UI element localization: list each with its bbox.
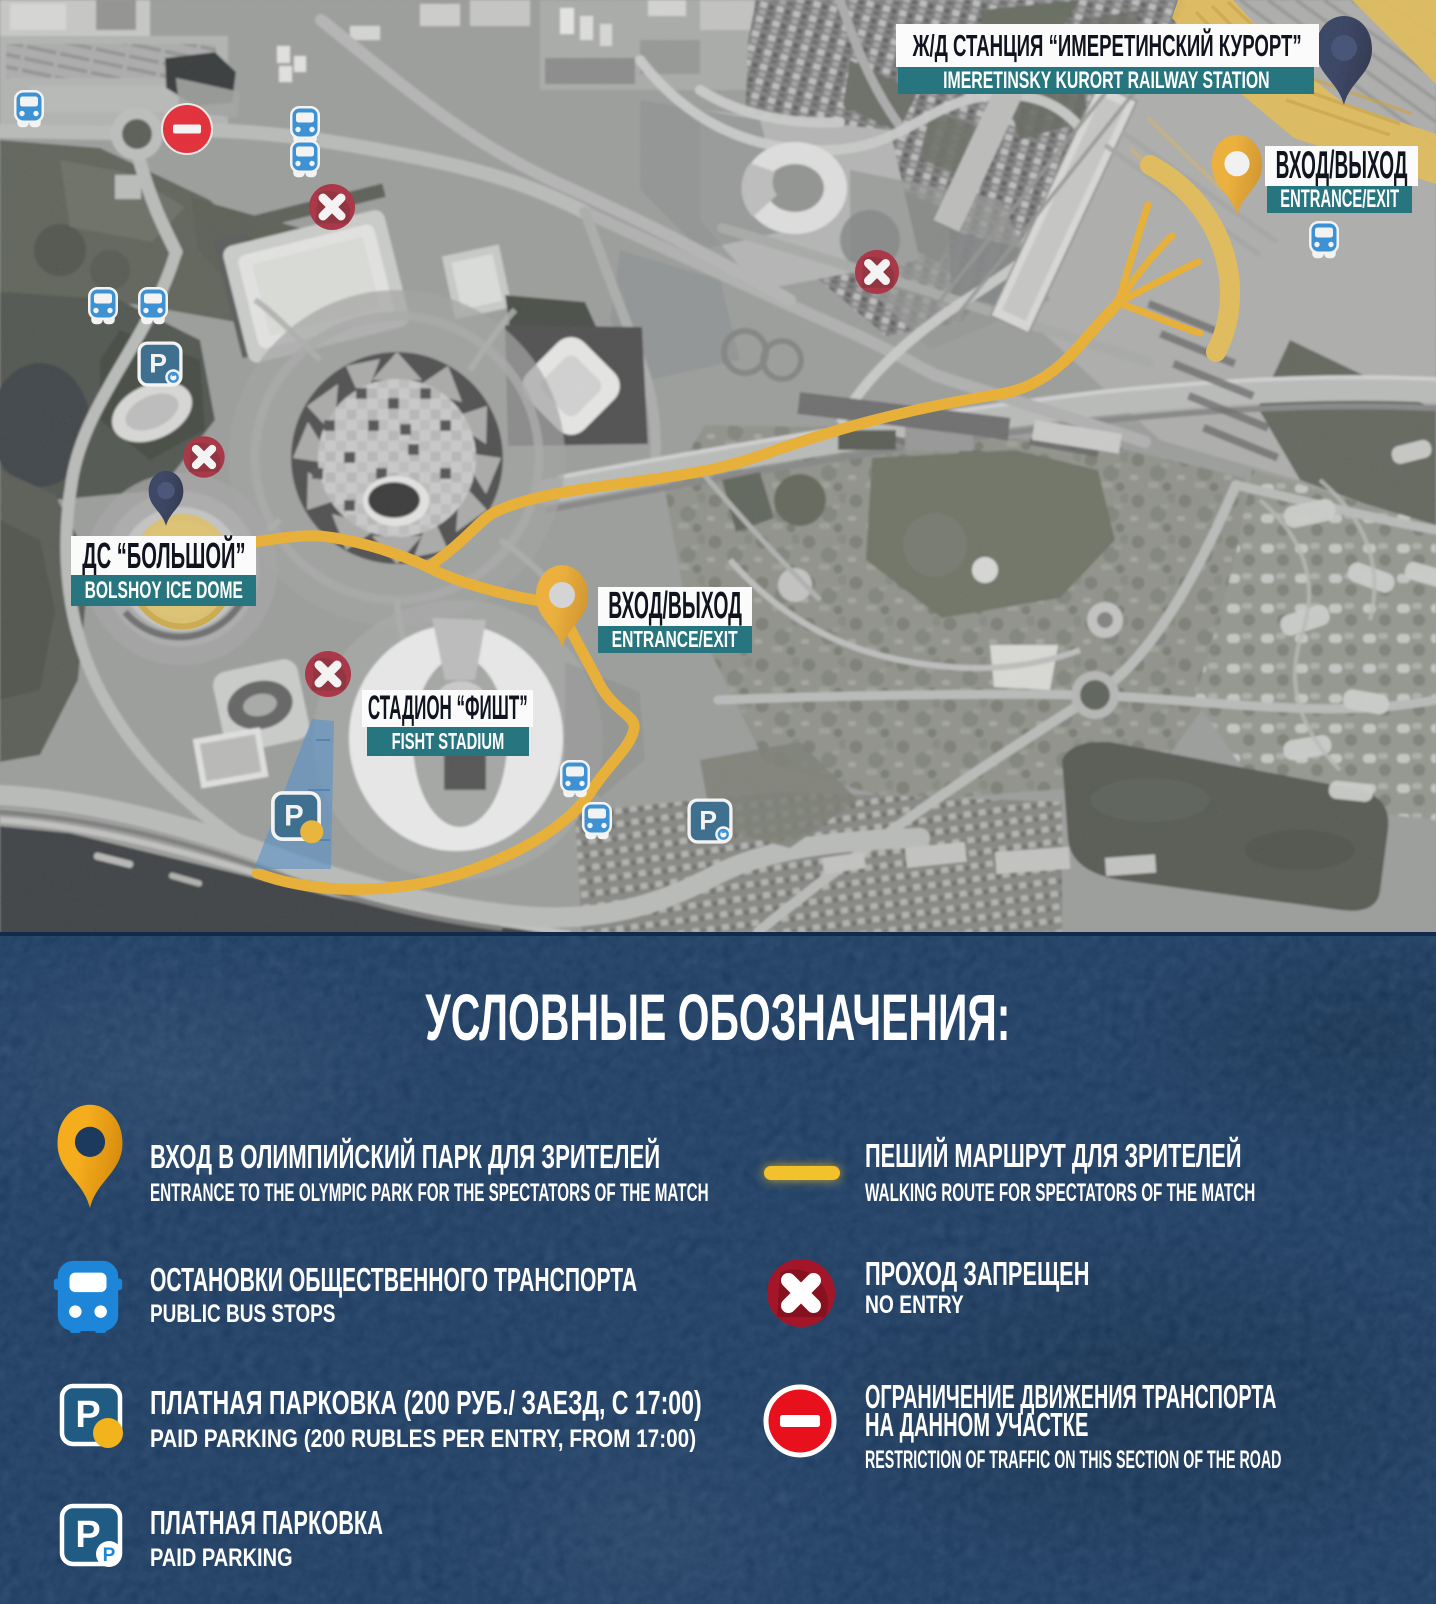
svg-text:P: P: [103, 1545, 116, 1566]
